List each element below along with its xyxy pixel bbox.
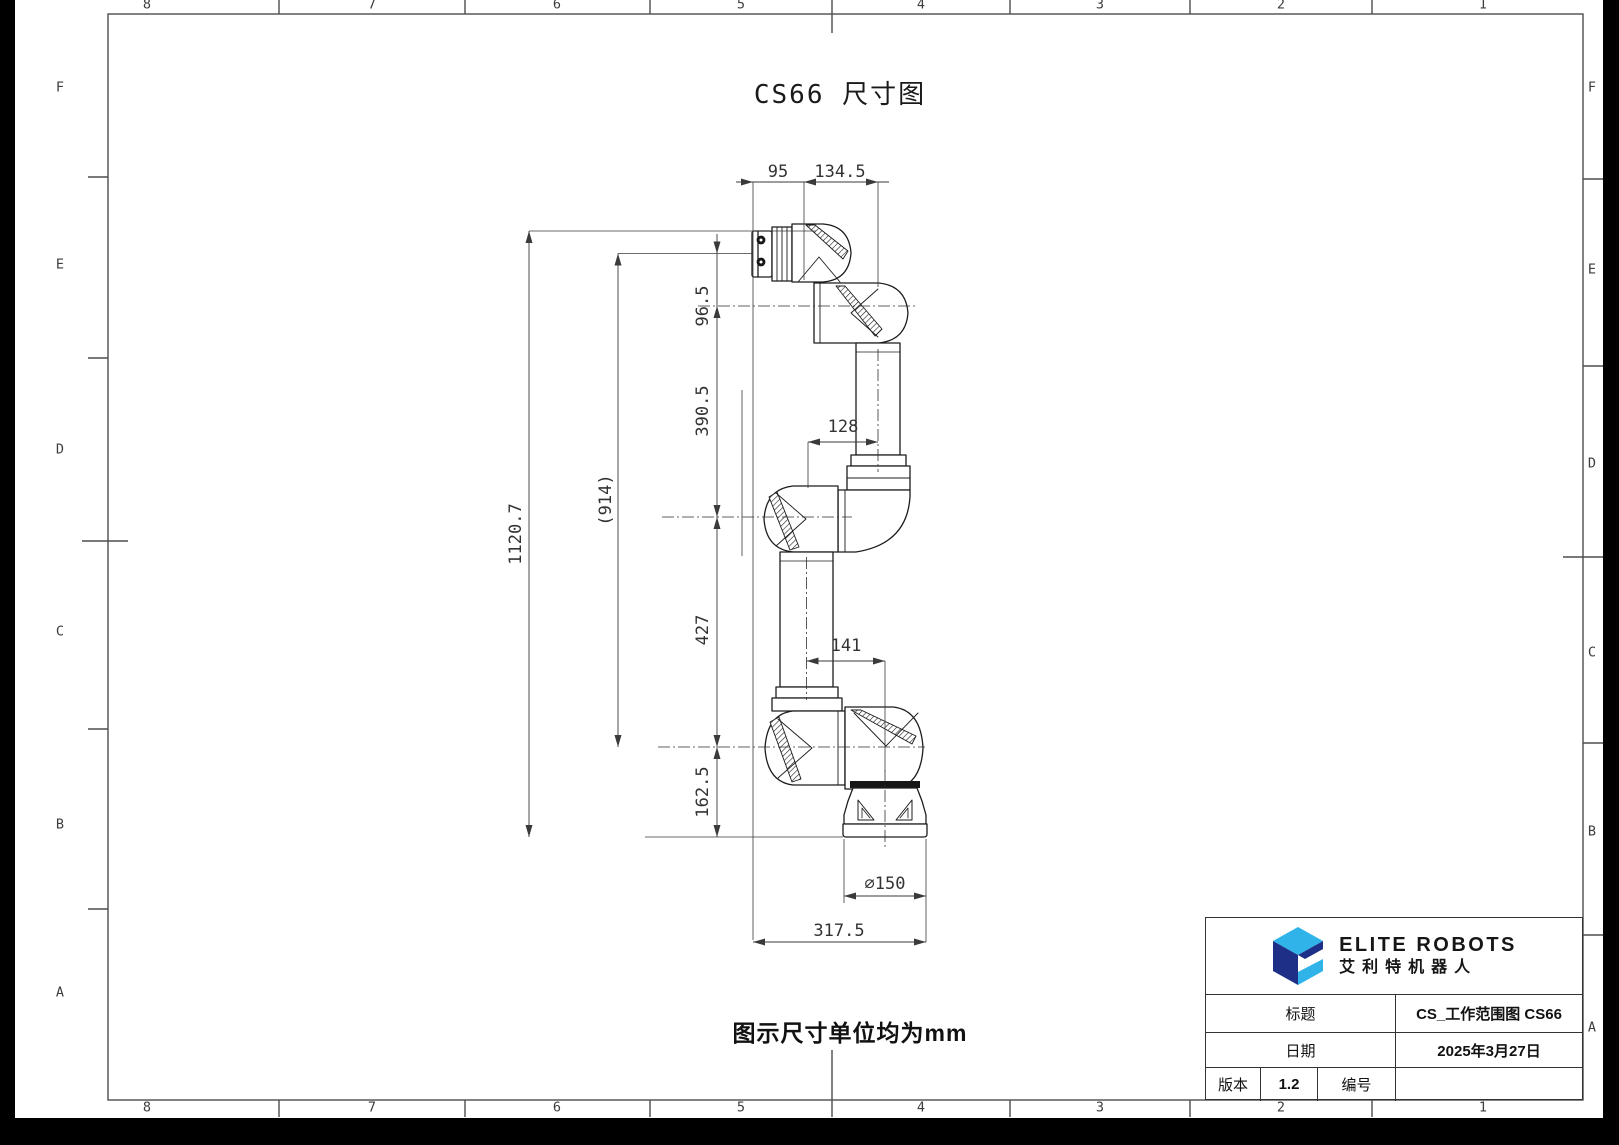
zone-column-label: 1 [1479,1101,1487,1115]
elbow-joint [764,486,910,552]
zone-ticks-top [279,0,1372,33]
date-field-label: 日期 [1206,1033,1395,1067]
zone-row-label: F [1588,81,1596,95]
title-block-title-row: 标题 CS_工作范围图 CS66 [1206,994,1582,1032]
zone-column-label: 6 [553,1101,561,1115]
zone-row-label: F [56,81,64,95]
zone-row-label: D [56,443,64,457]
dim-label-914: (914) [596,474,616,525]
dim-label-141: 141 [831,636,862,656]
version-field-value: 1.2 [1260,1068,1317,1101]
wrist-joint-upper [792,224,851,282]
zone-column-label: 8 [143,0,151,12]
version-field-label: 版本 [1206,1068,1260,1101]
zone-column-label: 5 [737,1101,745,1115]
zone-row-label: A [56,986,64,1000]
zone-row-label: C [56,625,64,639]
zone-column-label: 6 [553,0,561,12]
tool-flange [752,227,792,281]
number-field-value [1395,1068,1582,1101]
number-field-label: 编号 [1317,1068,1395,1101]
shoulder-joint [765,707,923,789]
dim-label-390-5: 390.5 [693,385,713,436]
zone-row-label: B [56,818,64,832]
robot-base [843,781,927,837]
zone-row-label: A [1588,1021,1596,1035]
dim-label-96-5: 96.5 [693,286,713,327]
brand-name-cn: 艾利特机器人 [1339,957,1517,979]
dim-label-162-5: 162.5 [693,766,713,817]
dim-label-317-5: 317.5 [813,921,864,941]
letterbox-right [1603,0,1619,1145]
page-title: CS66 尺寸图 [754,74,926,111]
robot-arm-drawing [752,224,927,837]
letterbox-left [0,0,15,1145]
zone-column-label: 7 [368,1101,376,1115]
zone-column-label: 3 [1096,1101,1104,1115]
zone-column-label: 8 [143,1101,151,1115]
title-block: ELITE ROBOTS 艾利特机器人 标题 CS_工作范围图 CS66 日期 … [1205,917,1583,1100]
dim-label-95: 95 [768,162,788,182]
dim-label-134-5: 134.5 [814,162,865,182]
zone-row-label: E [56,258,64,272]
unit-note: 图示尺寸单位均为mm [733,1014,968,1048]
dim-label-128: 128 [828,417,859,437]
zone-column-label: 5 [737,0,745,12]
zone-row-label: E [1588,263,1596,277]
dim-label-diameter-150: ⌀150 [865,874,906,894]
title-block-logo-row: ELITE ROBOTS 艾利特机器人 [1206,918,1582,994]
title-field-value: CS_工作范围图 CS66 [1395,995,1582,1032]
dim-label-427: 427 [693,615,713,646]
zone-column-label: 7 [368,0,376,12]
brand-name-en: ELITE ROBOTS [1339,933,1517,957]
date-field-value: 2025年3月27日 [1395,1033,1582,1067]
brand-text: ELITE ROBOTS 艾利特机器人 [1339,933,1517,979]
title-field-label: 标题 [1206,995,1395,1032]
zone-column-label: 1 [1479,0,1487,12]
zone-ticks-left [82,177,128,909]
zone-column-label: 4 [917,0,925,12]
zone-row-label: B [1588,825,1596,839]
zone-column-label: 4 [917,1101,925,1115]
letterbox-bottom [0,1118,1619,1145]
zone-column-label: 2 [1277,0,1285,12]
zone-column-label: 3 [1096,0,1104,12]
elite-robots-logo-icon [1271,926,1325,986]
drawing-sheet: 95 134.5 96.5 390.5 427 162.5 1120.7 (91… [0,0,1619,1145]
zone-row-label: C [1588,646,1596,660]
wrist-joint-lower [814,283,908,343]
dim-label-1120-7: 1120.7 [506,503,526,564]
zone-column-label: 2 [1277,1101,1285,1115]
upper-arm-link [772,552,842,711]
zone-row-label: D [1588,457,1596,471]
title-block-version-row: 版本 1.2 编号 [1206,1067,1582,1101]
title-block-date-row: 日期 2025年3月27日 [1206,1032,1582,1067]
